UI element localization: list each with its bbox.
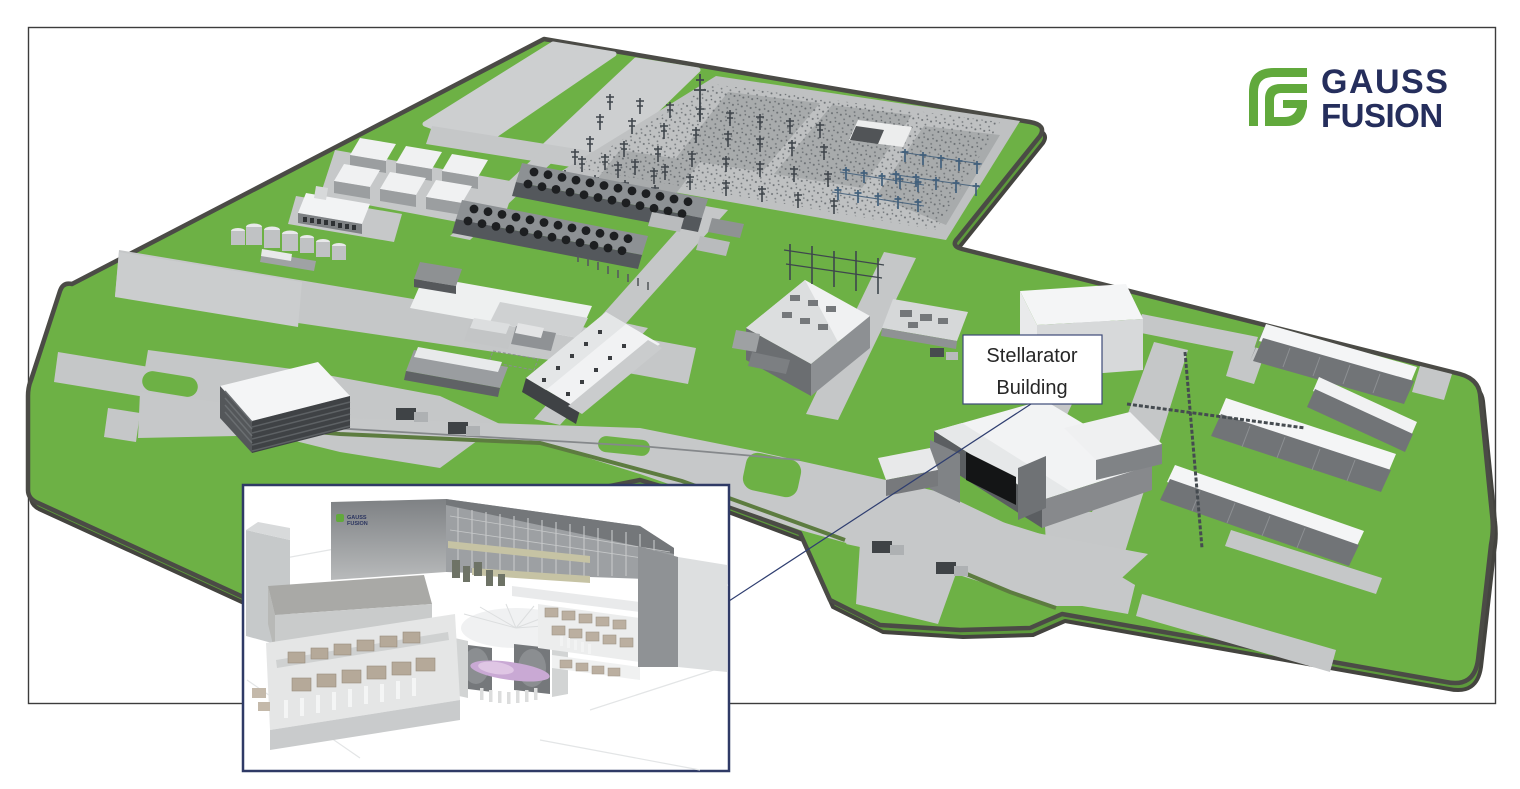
svg-text:FUSION: FUSION [347,521,368,527]
svg-text:Building: Building [996,377,1067,399]
svg-text:GAUSS: GAUSS [1321,63,1449,101]
svg-text:FUSION: FUSION [1321,97,1443,134]
svg-text:Stellarator: Stellarator [986,345,1077,367]
